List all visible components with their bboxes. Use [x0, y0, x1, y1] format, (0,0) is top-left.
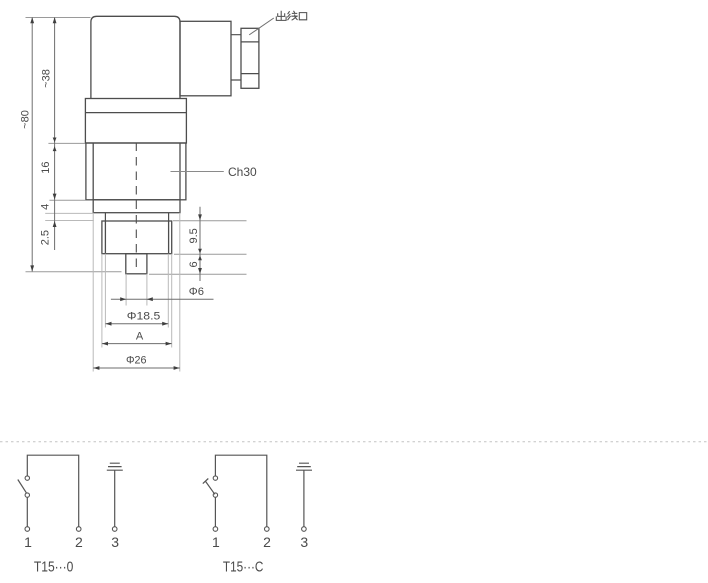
- svg-text:Φ6: Φ6: [189, 286, 204, 298]
- svg-text:2: 2: [263, 534, 271, 550]
- svg-text:3: 3: [111, 534, 119, 550]
- svg-text:2: 2: [75, 534, 83, 550]
- svg-text:T15···0: T15···0: [34, 559, 74, 576]
- svg-text:~80: ~80: [19, 110, 31, 129]
- svg-text:4: 4: [39, 204, 51, 210]
- svg-text:Φ26: Φ26: [126, 355, 147, 367]
- svg-text:T15···C: T15···C: [223, 559, 264, 576]
- svg-text:16: 16: [40, 161, 52, 173]
- svg-text:A: A: [136, 331, 144, 343]
- svg-text:1: 1: [212, 534, 220, 550]
- svg-text:1: 1: [24, 534, 32, 550]
- svg-text:3: 3: [300, 534, 308, 550]
- svg-text:~38: ~38: [40, 69, 52, 88]
- svg-text:2.5: 2.5: [40, 230, 52, 245]
- svg-text:Φ18.5: Φ18.5: [127, 310, 161, 322]
- svg-text:9.5: 9.5: [188, 228, 200, 243]
- svg-text:6: 6: [188, 261, 200, 267]
- svg-text:Ch30: Ch30: [228, 165, 257, 179]
